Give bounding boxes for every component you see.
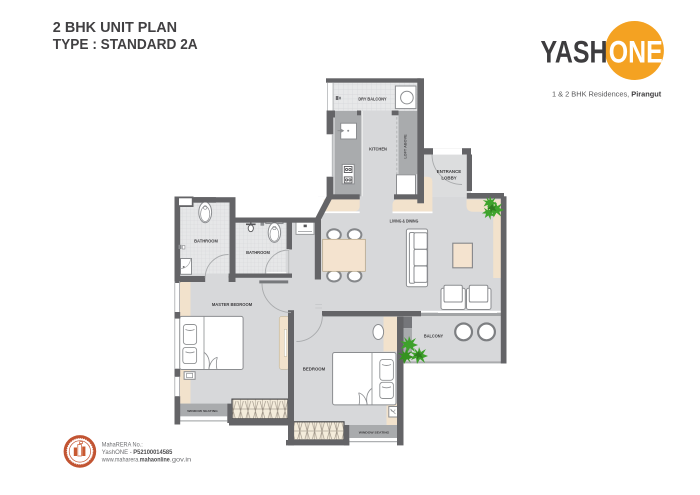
svg-text:mahaonline: mahaonline <box>140 457 170 464</box>
svg-text:MASTER BEDROOM: MASTER BEDROOM <box>212 302 253 307</box>
svg-text:KITCHEN: KITCHEN <box>369 146 387 151</box>
svg-text:TYPE : STANDARD 2A: TYPE : STANDARD 2A <box>53 37 198 53</box>
svg-text:ONE: ONE <box>609 34 663 70</box>
svg-text:.gov.in: .gov.in <box>170 457 192 464</box>
svg-text:LIVING & DINING: LIVING & DINING <box>390 218 419 224</box>
svg-text:MahaRERA No.:: MahaRERA No.: <box>102 441 143 448</box>
svg-text:YASH: YASH <box>541 34 608 70</box>
svg-text:P52100014585: P52100014585 <box>133 449 172 456</box>
svg-text:BEDROOM: BEDROOM <box>303 366 326 371</box>
svg-text:ENTRANCE: ENTRANCE <box>437 169 461 174</box>
svg-text:BALCONY: BALCONY <box>424 333 443 338</box>
svg-text:LOBBY: LOBBY <box>441 176 456 181</box>
svg-text:DRY BALCONY: DRY BALCONY <box>358 96 386 101</box>
svg-text:WINDOW SEATING: WINDOW SEATING <box>187 409 218 413</box>
svg-text:YashONE -: YashONE - <box>102 449 132 456</box>
svg-text:LOFT ABOVE: LOFT ABOVE <box>404 134 408 159</box>
svg-text:1 & 2 BHK Residences, Pirangut: 1 & 2 BHK Residences, Pirangut <box>552 89 662 98</box>
svg-text:BATHROOM: BATHROOM <box>194 238 218 243</box>
svg-text:www.maharera.: www.maharera. <box>101 457 140 464</box>
svg-text:2 BHK UNIT PLAN: 2 BHK UNIT PLAN <box>53 20 177 36</box>
svg-text:WINDOW SEATING: WINDOW SEATING <box>359 430 390 434</box>
svg-text:BATHROOM: BATHROOM <box>246 250 270 255</box>
